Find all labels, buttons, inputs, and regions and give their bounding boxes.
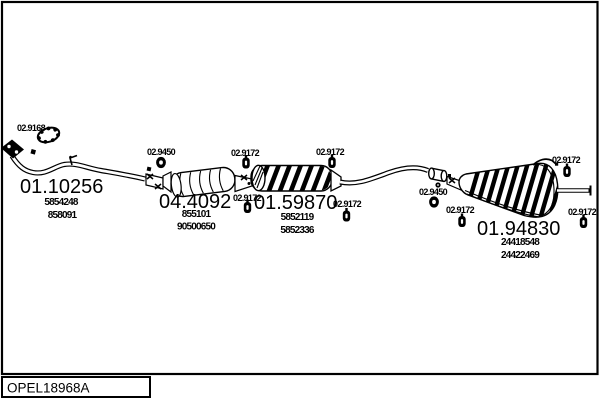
assembly-rear-silencer-labels: 01.94830 24418548 24422469 <box>477 218 560 261</box>
exhaust-parts-diagram: 02.9168 02.9450 02.9172 02.9172 02.9172 … <box>0 0 600 400</box>
fitting-part-number[interactable]: 02.9172 <box>316 147 345 157</box>
assembly-front-pipe-labels: 01.10256 5854248 858091 <box>20 176 103 221</box>
oem-ref: 5852336 <box>280 225 315 236</box>
mount-point <box>147 167 152 172</box>
drawing-code: OPEL18968A <box>7 381 90 396</box>
fitting-part-number[interactable]: 02.9172 <box>231 148 260 158</box>
rubber-hanger-icon <box>563 164 570 178</box>
rear-silencer <box>447 154 569 226</box>
mount-point <box>30 149 36 155</box>
front-pipe <box>1 140 145 180</box>
fitting-part-number[interactable]: 02.9172 <box>568 207 597 217</box>
assembly-middle-silencer-labels: 01.59870 5852119 5852336 <box>254 192 337 236</box>
flex-joint <box>146 174 163 189</box>
oem-ref: 5852119 <box>281 212 315 223</box>
assembly-part-number[interactable]: 01.59870 <box>254 192 337 214</box>
drawing-code-box: OPEL18968A <box>2 377 150 397</box>
oem-ref: 90500650 <box>177 222 216 233</box>
tailpipe <box>556 186 591 196</box>
fitting-part-number[interactable]: 02.9450 <box>419 187 448 197</box>
fitting-part-number[interactable]: 02.9172 <box>446 205 475 215</box>
rubber-hanger-icon <box>343 208 350 222</box>
assembly-catalyst-labels: 04.4092 855101 90500650 <box>159 191 231 233</box>
pipe-coupling <box>429 168 435 179</box>
silencer-outlet-cone <box>331 170 341 191</box>
assembly-part-number[interactable]: 01.10256 <box>20 176 103 198</box>
oem-ref: 24422469 <box>501 250 540 261</box>
rubber-ring-icon <box>429 196 439 207</box>
front-flange <box>1 140 24 159</box>
middle-silencer <box>251 162 341 196</box>
intermediate-pipe <box>340 168 459 188</box>
oem-ref: 5854248 <box>44 197 79 208</box>
fitting-part-number[interactable]: 02.9172 <box>552 155 581 165</box>
oem-ref: 855101 <box>182 209 212 220</box>
rubber-hanger-icon <box>458 214 465 228</box>
oem-ref: 24418548 <box>501 237 540 248</box>
fitting-part-number[interactable]: 02.9450 <box>147 147 176 157</box>
diagram-canvas: 02.9168 02.9450 02.9172 02.9172 02.9172 … <box>0 0 600 400</box>
fitting-part-number[interactable]: 02.9168 <box>17 123 46 133</box>
oem-ref: 858091 <box>48 210 78 221</box>
rubber-ring-icon <box>156 157 166 168</box>
